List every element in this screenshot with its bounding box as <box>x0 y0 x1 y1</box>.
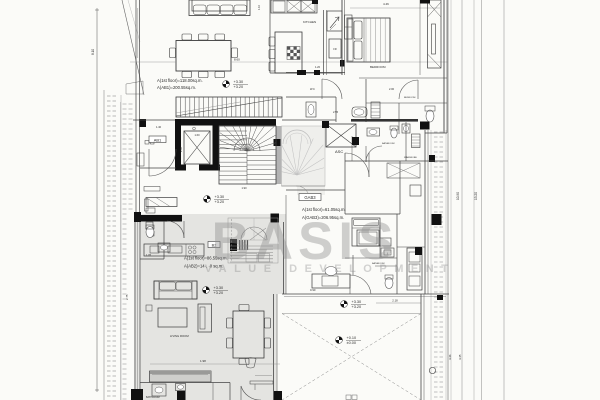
svg-text:4.46: 4.46 <box>448 354 452 360</box>
svg-text:1.60: 1.60 <box>194 133 200 137</box>
svg-text:1.40: 1.40 <box>156 125 162 129</box>
svg-text:LIVING ROOM: LIVING ROOM <box>170 334 189 338</box>
svg-text:2.00: 2.00 <box>389 87 395 91</box>
svg-text:FR: FR <box>333 48 336 51</box>
svg-text:BEDROOM: BEDROOM <box>370 65 386 69</box>
svg-text:1.05: 1.05 <box>146 253 152 257</box>
svg-text:+3.20: +3.20 <box>352 305 362 309</box>
svg-text:+3.30: +3.30 <box>234 80 244 84</box>
svg-text:2.75: 2.75 <box>125 294 129 300</box>
svg-text:BATHROOM: BATHROOM <box>382 142 395 145</box>
svg-text:BATHROOM: BATHROOM <box>146 396 160 399</box>
svg-text:2.00: 2.00 <box>179 146 183 152</box>
svg-text:+3.30: +3.30 <box>214 286 224 290</box>
svg-text:0.90: 0.90 <box>310 288 316 292</box>
svg-text:KITCHEN: KITCHEN <box>303 20 316 24</box>
svg-text:WARDROBE: WARDROBE <box>404 156 417 159</box>
svg-text:8.10: 8.10 <box>91 49 95 55</box>
svg-text:1.20: 1.20 <box>315 65 321 69</box>
svg-text:ASC: ASC <box>335 149 343 154</box>
svg-text:GAB3: GAB3 <box>304 195 316 200</box>
svg-text:10.90: 10.90 <box>456 192 460 200</box>
svg-text:W.C: W.C <box>310 87 315 91</box>
svg-text:+3.30: +3.30 <box>352 300 362 304</box>
svg-text:A(1st floor)=118.00sq.m.: A(1st floor)=118.00sq.m. <box>157 78 203 83</box>
svg-text:2.18: 2.18 <box>392 299 398 303</box>
svg-text:+3.30: +3.30 <box>215 195 225 199</box>
svg-text:+0.10: +0.10 <box>347 336 357 340</box>
svg-text:1.98: 1.98 <box>200 359 206 363</box>
svg-text:1.90: 1.90 <box>241 186 247 190</box>
svg-text:+3.20: +3.20 <box>214 291 224 295</box>
svg-text:8.60: 8.60 <box>234 58 240 62</box>
svg-text:1.10: 1.10 <box>257 4 261 10</box>
svg-text:AB1: AB1 <box>154 138 162 143</box>
svg-text:4.46: 4.46 <box>383 2 389 6</box>
svg-text:±0.00: ±0.00 <box>347 341 356 345</box>
svg-text:VALUE DEVELOPMENT: VALUE DEVELOPMENT <box>205 263 456 275</box>
svg-text:2.55: 2.55 <box>333 110 339 114</box>
svg-text:13.20: 13.20 <box>474 192 478 200</box>
svg-text:BEDROOM: BEDROOM <box>404 97 415 99</box>
svg-text:+3.20: +3.20 <box>234 85 244 89</box>
svg-text:+3.20: +3.20 <box>215 200 225 204</box>
svg-text:4.45: 4.45 <box>458 354 462 360</box>
svg-text:A(AB1)=200.55sq.m.: A(AB1)=200.55sq.m. <box>157 85 196 90</box>
